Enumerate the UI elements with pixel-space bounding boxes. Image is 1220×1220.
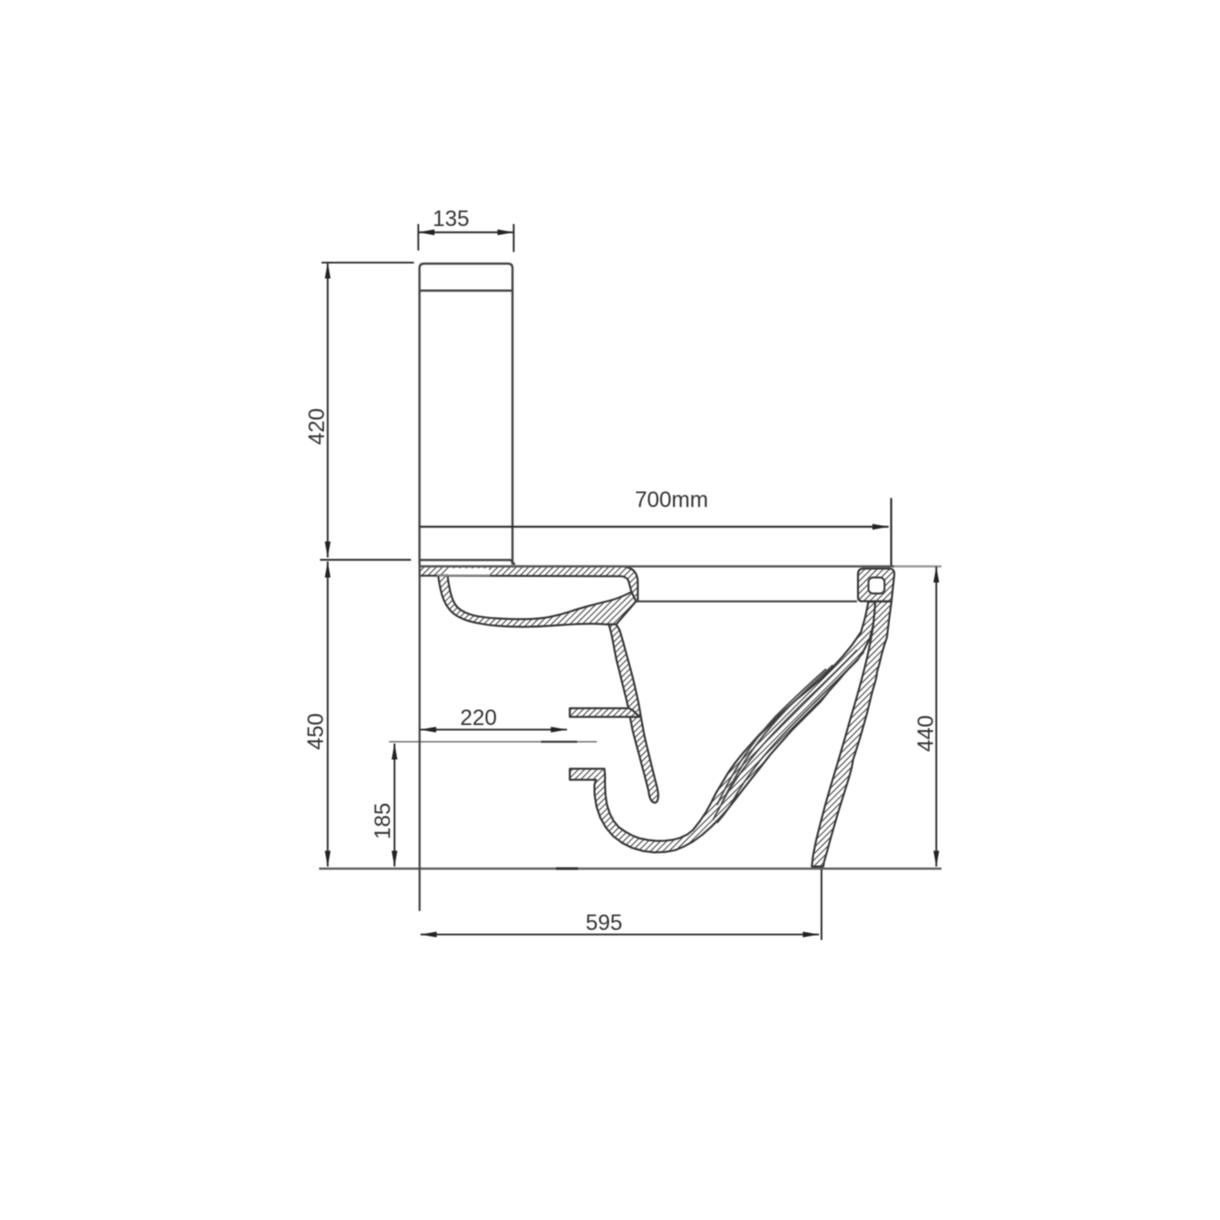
svg-text:595: 595 — [586, 910, 623, 935]
svg-text:420: 420 — [304, 408, 329, 445]
svg-text:700mm: 700mm — [635, 487, 708, 512]
svg-text:220: 220 — [460, 705, 497, 730]
svg-text:450: 450 — [303, 713, 328, 750]
svg-text:185: 185 — [370, 803, 395, 840]
svg-text:135: 135 — [433, 206, 470, 231]
svg-text:440: 440 — [913, 715, 938, 752]
